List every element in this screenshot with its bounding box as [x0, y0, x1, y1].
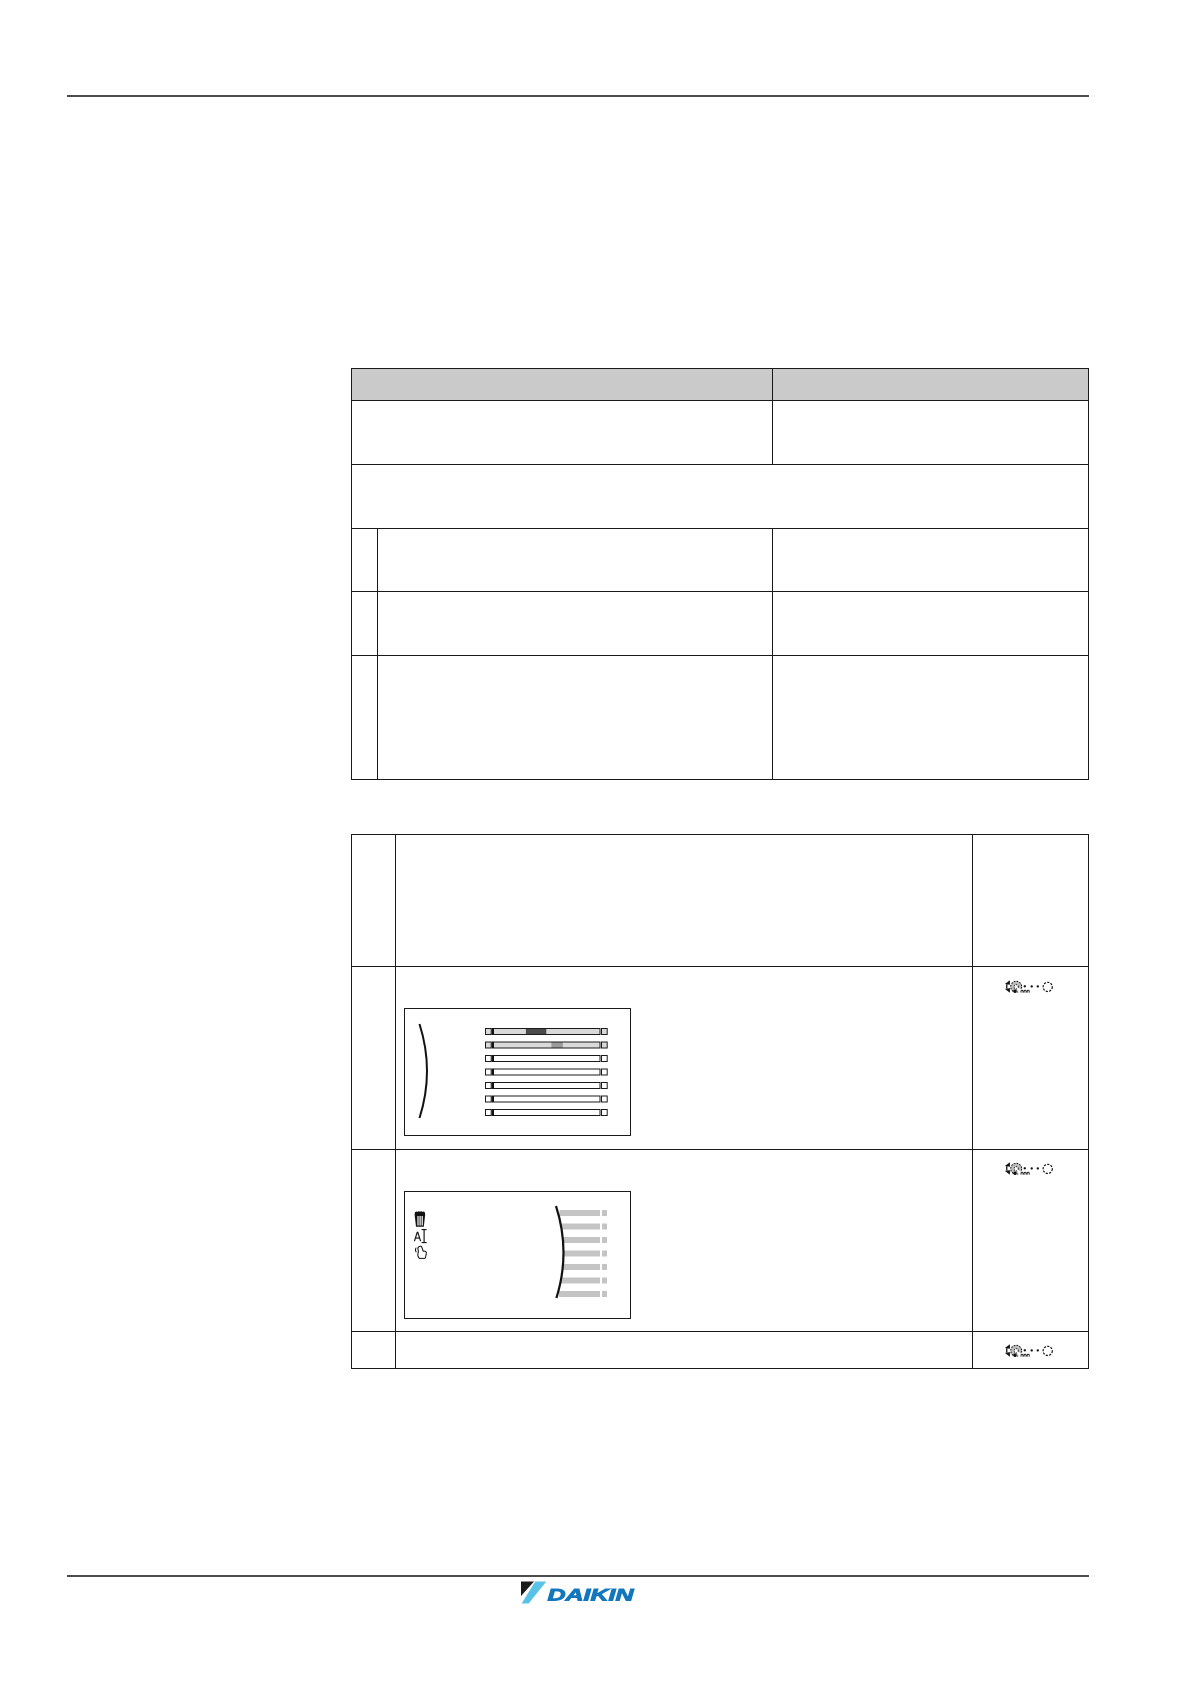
svg-text:DAIKIN: DAIKIN: [548, 1585, 635, 1604]
